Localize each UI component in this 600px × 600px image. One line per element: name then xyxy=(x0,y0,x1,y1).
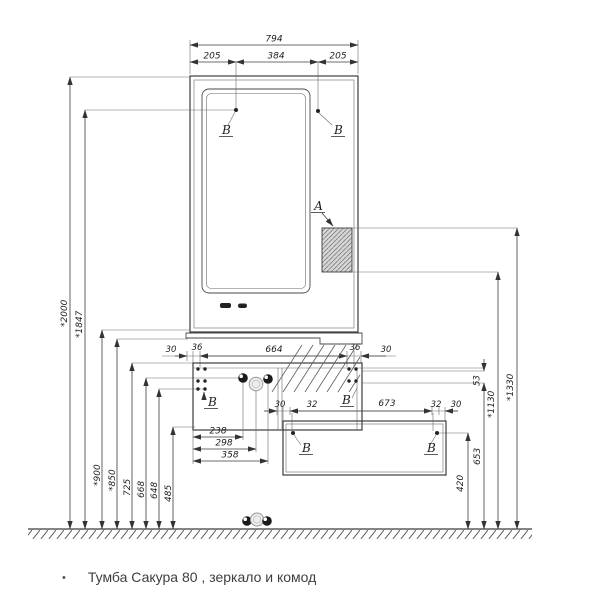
floor-clamp-icons xyxy=(242,513,272,526)
vanity-unit: В В xyxy=(193,345,362,430)
caption: • Тумба Сакура 80 , зеркало и комод xyxy=(62,568,582,588)
dim-dresser-30r: 30 xyxy=(451,400,462,410)
detail-a: А xyxy=(311,199,517,272)
dim-row-30l: 30 xyxy=(166,345,177,355)
dim-dresser-32r: 32 xyxy=(431,400,442,410)
dim-h668: 668 xyxy=(137,481,147,498)
dim-h1130: *1130 xyxy=(487,390,497,418)
dim-dresser-30l: 30 xyxy=(275,400,286,410)
label-b-dresser-right: В xyxy=(426,441,436,455)
mounting-clamp-icons xyxy=(238,373,273,391)
dim-dresser-32l: 32 xyxy=(307,400,318,410)
dim-h850: *850 xyxy=(108,469,118,491)
dim-row-36l: 36 xyxy=(192,343,203,353)
dim-top-total: 794 xyxy=(265,35,282,45)
fastener-dots xyxy=(196,367,357,390)
label-detail-a: А xyxy=(313,199,323,213)
label-b-dresser-left: В xyxy=(301,441,311,455)
dim-358: 358 xyxy=(221,451,238,461)
label-b-mirror-right: В xyxy=(333,123,343,137)
mirror-cabinet xyxy=(190,76,358,332)
technical-drawing-page: 794 205 384 205 В В xyxy=(0,0,600,600)
dim-top-right: 205 xyxy=(329,52,346,62)
dim-298: 298 xyxy=(215,439,232,449)
label-b-mirror-left: В xyxy=(221,123,231,137)
dim-h653: 653 xyxy=(473,448,483,465)
dim-h648: 648 xyxy=(150,482,160,499)
gap-53-dimension: 53 xyxy=(362,359,484,395)
label-b-vanity-right: В xyxy=(341,393,351,407)
caption-bullet: • xyxy=(62,568,66,588)
furniture-dimension-drawing: 794 205 384 205 В В xyxy=(0,0,600,560)
dim-h1330: *1330 xyxy=(506,373,516,401)
top-dimensions: 794 205 384 205 В В xyxy=(190,35,358,138)
dresser-unit: 30 32 673 32 30 В В xyxy=(264,399,461,475)
dim-top-left: 205 xyxy=(203,52,220,62)
ground-line xyxy=(28,529,532,539)
dim-h1847: *1847 xyxy=(75,310,85,338)
dim-h2000: *2000 xyxy=(60,299,70,327)
switch-socket-icons xyxy=(220,303,247,308)
caption-text: Тумба Сакура 80 , зеркало и комод xyxy=(88,568,316,587)
dim-row-664: 664 xyxy=(265,345,282,355)
dim-h420: 420 xyxy=(456,475,466,492)
dim-gap-53: 53 xyxy=(473,375,483,386)
label-b-vanity-left: В xyxy=(207,395,217,409)
dim-row-30r: 30 xyxy=(381,345,392,355)
dim-238: 238 xyxy=(209,427,226,437)
dim-h485: 485 xyxy=(164,485,174,502)
dim-h900: *900 xyxy=(93,464,103,486)
dim-dresser-673: 673 xyxy=(378,399,395,409)
dim-h725: 725 xyxy=(123,479,133,496)
console-panel xyxy=(186,333,362,344)
dim-top-center: 384 xyxy=(267,52,284,62)
